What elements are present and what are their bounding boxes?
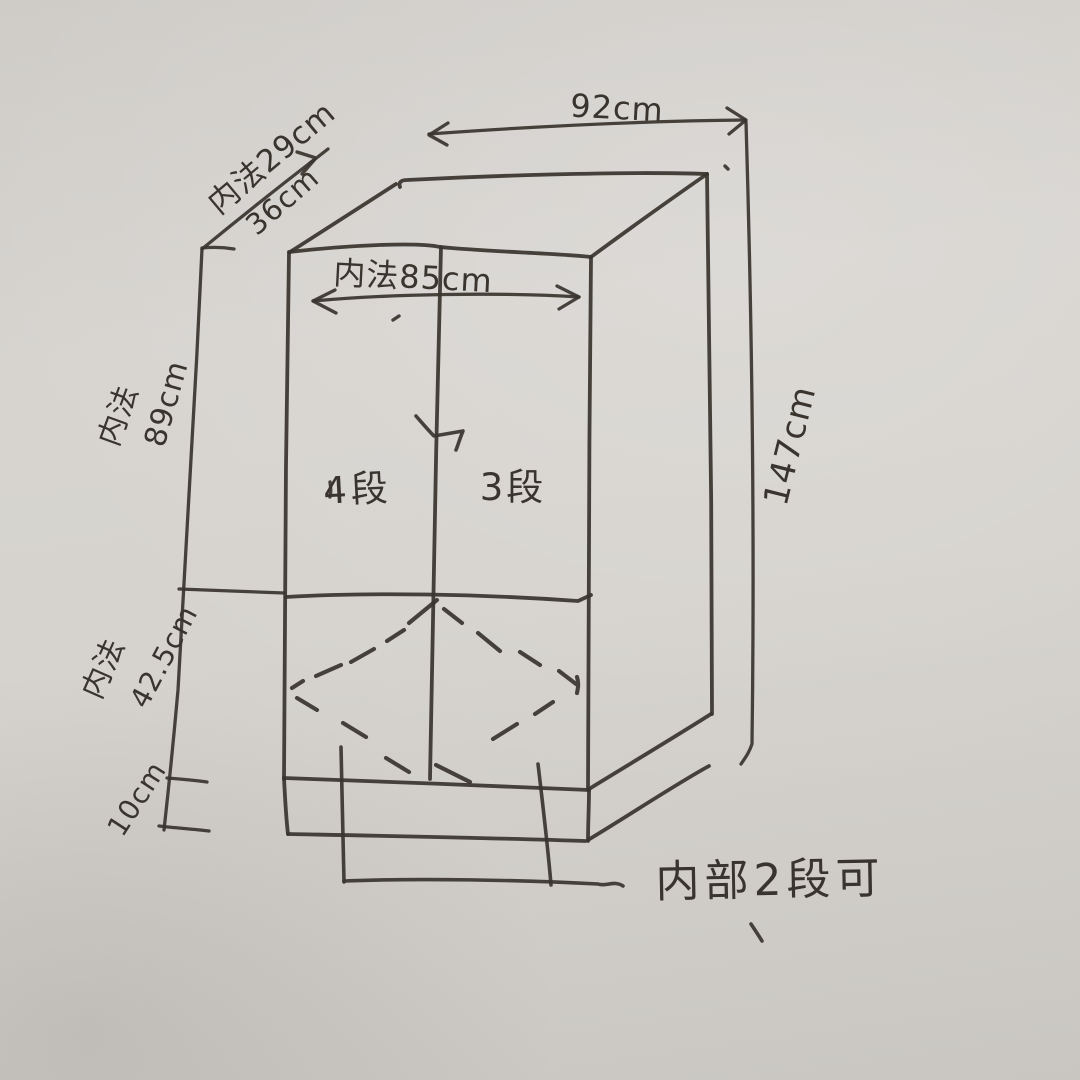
dim-left-line <box>164 249 202 830</box>
label-left-column-shelves: 4段 <box>304 468 411 512</box>
leader-horizontal <box>344 880 623 886</box>
leader-drop-left <box>341 747 344 882</box>
base-top-receding-edge <box>589 714 711 789</box>
leader-drop-right <box>538 764 551 885</box>
cross-solid-strokes <box>409 600 470 782</box>
divider-pointer-zigzag <box>416 416 463 450</box>
dim-left-tick-shelf <box>179 589 284 593</box>
ink-dot-top-right <box>725 166 728 169</box>
box-back-right-edge <box>707 174 712 714</box>
note-comma-mark <box>751 924 762 941</box>
dashed-cross-lower-compartment <box>292 600 578 782</box>
base-right-edge <box>588 790 589 841</box>
label-right-column-shelves: 3段 <box>463 469 563 508</box>
sketch-lines <box>0 0 1080 1080</box>
paper-sheet: 92cm 内法29cm 36cm 内法85cm 内法 89cm 内法 42.5c… <box>0 0 1080 1080</box>
label-bottom-note: 内部2段可 <box>630 856 911 907</box>
base-top-edge <box>284 778 589 790</box>
dim-left-tick-bottom <box>159 826 209 831</box>
cross-dashes <box>292 630 578 772</box>
box-top-back-edge <box>399 173 707 187</box>
dimension-147cm-line <box>741 122 753 764</box>
note-leader-lines <box>341 747 762 941</box>
center-divider-line <box>430 247 441 779</box>
dim-147-line <box>741 122 753 764</box>
stray-ink-marks <box>330 166 728 497</box>
box-top-right-receding-edge <box>591 174 707 257</box>
base-bottom-edge <box>288 834 585 841</box>
dim-left-tick-base <box>167 778 207 782</box>
ink-dash-under-85 <box>393 316 399 320</box>
box-front-left-edge <box>284 253 289 779</box>
cabinet-base <box>284 714 711 841</box>
box-front-right-edge <box>588 258 591 790</box>
cabinet-divider-and-shelf <box>286 247 591 779</box>
base-left-edge <box>284 778 288 834</box>
dim-left-tick-top <box>202 247 234 249</box>
dimension-left-height-line <box>159 247 284 831</box>
